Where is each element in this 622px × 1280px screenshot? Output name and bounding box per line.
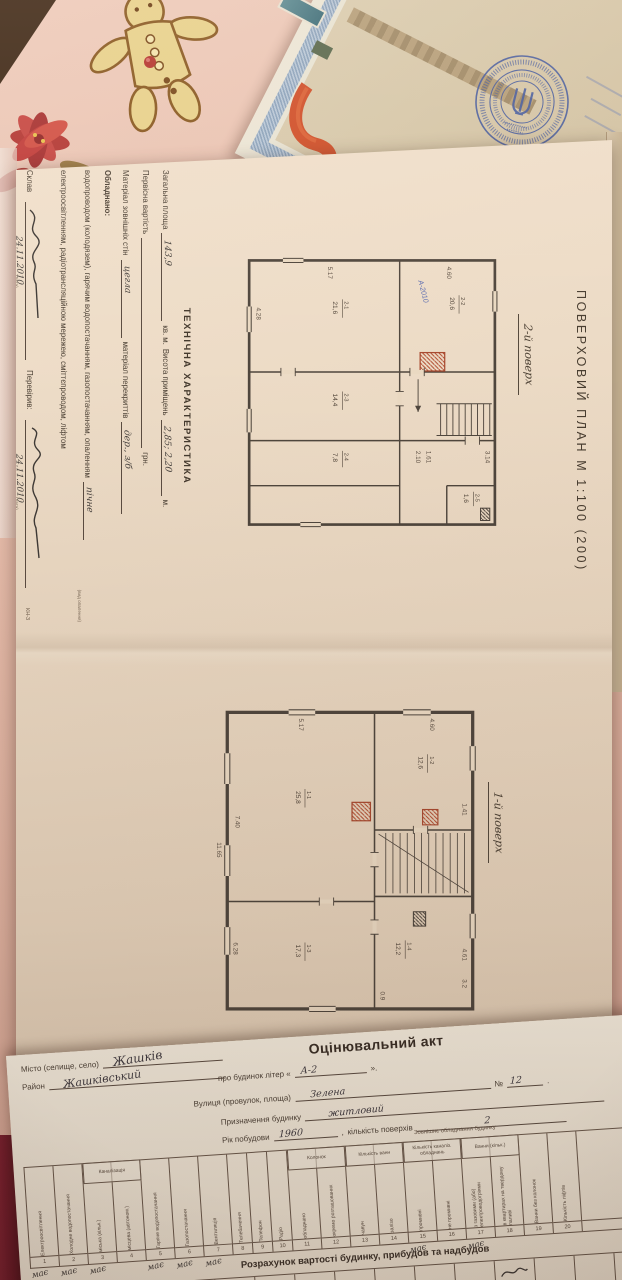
act-col-number: 14 (380, 1232, 409, 1245)
room-labels: 2-121,6 2-220,6 2-314,4 2-47,8 2-51,6 (331, 295, 479, 506)
tech-line-area: Загальна площа 143,9 кв. м. Висота примі… (161, 170, 172, 622)
cost-field (141, 238, 152, 448)
act-col-extra (576, 1128, 622, 1232)
stove (423, 810, 438, 825)
area-label: Загальна площа (161, 170, 170, 229)
svg-text:2-4: 2-4 (342, 453, 348, 461)
floor-plan-drawing-1st: 5.17 4.60 7.40 11.65 6.28 4.61 1.41 3.2 … (215, 697, 487, 1012)
svg-text:2-3: 2-3 (342, 394, 348, 402)
svg-text:1.61: 1.61 (424, 451, 431, 464)
svg-text:1-4: 1-4 (405, 942, 411, 950)
svg-text:12,6: 12,6 (416, 756, 423, 769)
act-col-label: Холодне водопостачання (66, 1182, 77, 1254)
act-col-number: 16 (437, 1228, 466, 1241)
svg-text:4.61: 4.61 (460, 949, 467, 962)
act-col-number: 19 (524, 1222, 553, 1235)
act-col-label: чавун (357, 1165, 367, 1235)
photo-of-documents: ПОВЕРХОВИЙ ПЛАН М 1:100 (200) 2-й поверх… (0, 0, 622, 1280)
ceilings-label: матеріал перекриттів (121, 342, 130, 419)
svg-text:1,6: 1,6 (462, 494, 469, 503)
floor-plan-drawing-2nd: 5.17 4.60 4.28 3.14 2.10 1.61 2-121,6 2-… (242, 250, 500, 535)
tech-line-equip2: електроосвітленням, радіотрансляційною м… (59, 170, 68, 622)
cloth-fold (0, 148, 17, 538)
act-col-number: 18 (495, 1224, 524, 1237)
act-col-number: 6 (175, 1245, 204, 1258)
floor-plan-page: ПОВЕРХОВИЙ ПЛАН М 1:100 (200) 2-й поверх… (16, 140, 612, 1062)
svg-text:21,6: 21,6 (331, 301, 338, 314)
act-col-group: Ванни (кільк.) (460, 1134, 519, 1159)
svg-text:1-1: 1-1 (305, 791, 311, 799)
act-col-number: 15 (409, 1230, 438, 1243)
made-signature: 24.11.2010 (дата) (25, 202, 41, 360)
svg-text:1.41: 1.41 (460, 803, 467, 816)
plan-label-1st-floor: 1-й поверх (488, 782, 508, 863)
act-col-number: 8 (233, 1242, 253, 1254)
svg-text:3.14: 3.14 (484, 451, 491, 464)
svg-text:25,8: 25,8 (294, 791, 301, 804)
act-col-label: окремо розташованих (328, 1167, 338, 1237)
svg-text:12,2: 12,2 (394, 942, 401, 955)
building-letter-field: про будинок літер « А-2 ». (218, 1061, 378, 1083)
svg-text:17,3: 17,3 (294, 944, 301, 957)
act-col-value: має (31, 1267, 50, 1280)
tech-line-materials: Матеріал зовнішніх стін цегла матеріал п… (121, 170, 132, 622)
act-col-group: Каналізація (82, 1159, 141, 1184)
tech-line-signatures: Склав 24.11.2010 (дата) Перевірив: 24.1 (25, 170, 41, 622)
checked-label: Перевірив: (25, 370, 34, 410)
area-field: 143,9 (161, 233, 172, 321)
act-col-label: Радіо (275, 1168, 286, 1240)
svg-text:11.65: 11.65 (215, 842, 222, 858)
svg-text:7.40: 7.40 (233, 816, 240, 829)
staircase (379, 833, 469, 893)
form-code: КН-3 (24, 608, 30, 620)
act-col-label: не промивні (444, 1159, 454, 1229)
svg-text:7,8: 7,8 (331, 453, 338, 462)
act-col-label: Гаряче водопостачання (152, 1176, 163, 1248)
stove (352, 802, 370, 820)
act-col-label: з газовими (або) електроводогріями (470, 1157, 486, 1228)
act-col-label: Газопостачання (181, 1174, 192, 1246)
signature-scribble (24, 424, 44, 564)
blue-inventory-note: А-2010 (416, 278, 430, 303)
svg-text:1-2: 1-2 (428, 756, 434, 764)
tech-line-cost: Первісна вартість грн. (141, 170, 152, 622)
act-col-number: 4 (117, 1249, 146, 1262)
act-col-label: в квартирах на твердому паливі (499, 1155, 515, 1226)
tech-title: ТЕХНІЧНА ХАРАКТЕРИСТИКА (181, 170, 192, 622)
plan-label-2nd-floor: 2-й поверх (518, 314, 538, 395)
heating-field: пічне (83, 482, 94, 540)
evaluation-act-sheet: Місто (селище, село) Жашків Район Жашків… (6, 1010, 622, 1280)
act-col-label: Кількість ліфтів (559, 1149, 570, 1221)
svg-text:4.60: 4.60 (428, 719, 435, 732)
round-seal-trident-icon (470, 48, 574, 156)
svg-text:5.17: 5.17 (326, 267, 333, 280)
act-col-label: залізо (386, 1163, 396, 1233)
act-col-number: 10 (273, 1239, 293, 1251)
svg-text:4.60: 4.60 (445, 267, 452, 280)
walls-label: Матеріал зовнішніх стін (121, 170, 130, 256)
act-col-group: Колонок (287, 1146, 346, 1171)
act-col-label: Вентиляція (210, 1172, 221, 1244)
act-col-label: Електроосвітлення (37, 1184, 48, 1256)
act-col-number: 7 (204, 1243, 233, 1256)
svg-text:0.9: 0.9 (379, 992, 386, 1001)
act-col-number: 12 (322, 1236, 351, 1249)
height-field: 2,85; 2,20 (161, 420, 172, 496)
svg-text:14,4: 14,4 (331, 394, 338, 407)
staircase (418, 379, 492, 435)
checked-signature: 24.11.2010 (дата) (25, 420, 41, 588)
svg-text:4.28: 4.28 (254, 308, 261, 321)
red-berry-icon (140, 52, 160, 72)
act-col-label: промивні (415, 1161, 425, 1231)
page-title: ПОВЕРХОВИЙ ПЛАН М 1:100 (200) (574, 290, 588, 572)
act-col-number: 1 (30, 1255, 59, 1268)
svg-text:1-3: 1-3 (305, 944, 311, 952)
svg-text:2-2: 2-2 (459, 297, 465, 305)
signature-scribble (24, 206, 44, 326)
act-col-group: Кількість каналіз. обладнань (403, 1138, 462, 1163)
svg-text:2-5: 2-5 (473, 494, 479, 502)
walls-field: цегла (121, 260, 132, 338)
tech-line-equip1: водопроводом (колодязем), гарячим водопо… (83, 170, 94, 622)
act-col-value: має (89, 1264, 108, 1277)
act-col-label: Ванни без колонок (531, 1151, 542, 1223)
act-col-number: 2 (59, 1253, 88, 1266)
act-col-label: Телефон (255, 1169, 266, 1241)
act-col-value: має (60, 1266, 79, 1279)
height-label: Висота приміщень (161, 349, 170, 416)
act-col-number: 9 (253, 1241, 273, 1253)
handwritten-mark (499, 1263, 530, 1280)
act-col-label: обладнано (299, 1168, 309, 1238)
act-col-number: 13 (351, 1234, 380, 1247)
equipped-label: Обладнано: (103, 170, 112, 622)
made-label: Склав (25, 170, 34, 192)
act-col-group: Кількість ванн (345, 1142, 404, 1167)
act-col-label: місцева (автоном.) (124, 1180, 134, 1250)
svg-text:5.17: 5.17 (297, 719, 304, 732)
act-col-label: Телебачення (235, 1171, 246, 1243)
act-col-label: міська (кільк.) (95, 1182, 105, 1252)
svg-text:3.2: 3.2 (460, 979, 467, 988)
act-col-number: 3 (88, 1251, 117, 1264)
ceilings-field: дер., з/б (121, 422, 132, 514)
svg-text:2.10: 2.10 (414, 451, 421, 464)
act-col-number: 20 (553, 1220, 582, 1233)
technical-characteristics: ТЕХНІЧНА ХАРАКТЕРИСТИКА Загальна площа 1… (25, 170, 192, 622)
cost-label: Первісна вартість (141, 170, 150, 234)
svg-text:6.28: 6.28 (231, 942, 238, 955)
room-labels: 1-125,8 1-212,6 1-317,3 1-412,2 (294, 754, 434, 961)
heating-caption: (вид опалення) (77, 590, 82, 622)
calc-table-cell (614, 1250, 622, 1280)
act-col-number: 5 (146, 1247, 175, 1260)
svg-text:20,6: 20,6 (448, 297, 455, 310)
act-col-number: 17 (466, 1226, 495, 1239)
act-col-number: 11 (293, 1238, 322, 1251)
svg-text:2-1: 2-1 (342, 301, 348, 309)
